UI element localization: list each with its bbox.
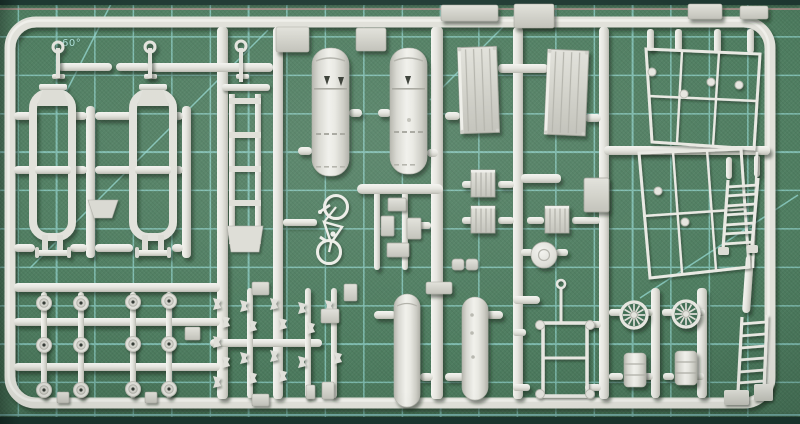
dome-disc-part — [531, 242, 557, 268]
sprue — [0, 0, 800, 424]
ladder-chassis-frame — [222, 41, 270, 252]
photo-plastic-sprue-on-cutting-mat: 60° 45 — [0, 0, 800, 424]
large-tank-half-4 — [462, 297, 488, 400]
large-tank-half-3 — [394, 294, 420, 407]
bicycle-part — [318, 196, 348, 264]
road-wheel-set — [37, 294, 177, 398]
spoked-wheel-1 — [621, 302, 647, 328]
spoked-wheel-2 — [673, 301, 699, 327]
ladder-2 — [724, 315, 773, 405]
large-tank-half-2 — [390, 48, 427, 174]
large-tank-half-1 — [312, 48, 349, 176]
wireframe-side-panel-1 — [646, 49, 760, 149]
handcart-frame — [536, 280, 595, 399]
tank-frame-1 — [33, 42, 72, 258]
small-crate-parts — [381, 198, 478, 270]
ladder-1 — [718, 178, 758, 255]
plank-panel-2 — [544, 49, 589, 136]
plank-panel-1 — [458, 46, 500, 133]
small-drum-parts — [624, 351, 697, 387]
